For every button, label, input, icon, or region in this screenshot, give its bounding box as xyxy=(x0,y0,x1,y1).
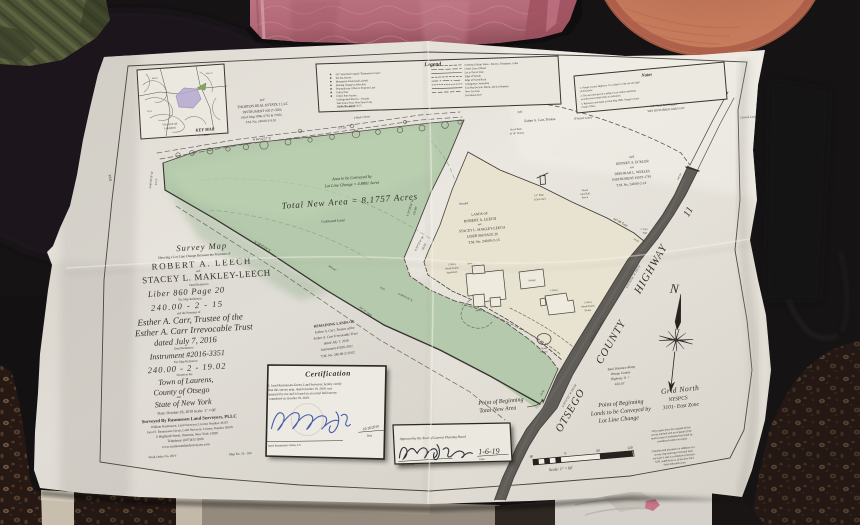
svg-text:Chair Person: Chair Person xyxy=(400,463,415,467)
svg-text:717.18': 717.18' xyxy=(337,126,347,131)
svg-text:N/F: N/F xyxy=(517,110,522,114)
svg-text:Deciduous Tree: Deciduous Tree xyxy=(465,94,482,98)
svg-text:Cty 11: Cty 11 xyxy=(147,111,152,113)
svg-text:60: 60 xyxy=(596,449,600,453)
svg-text:Date: Date xyxy=(367,433,373,437)
svg-text:120: 120 xyxy=(627,446,633,450)
svg-text:60: 60 xyxy=(530,454,534,458)
svg-text:Fence: Fence xyxy=(582,196,589,200)
svg-text:N/F: N/F xyxy=(260,98,265,102)
svg-text:N/F: N/F xyxy=(629,155,635,159)
svg-text:Mill St: Mill St xyxy=(152,78,158,80)
svg-text:Date: Date xyxy=(479,458,485,461)
svg-text:Certification: Certification xyxy=(305,368,351,378)
svg-text:Planter: Planter xyxy=(540,350,547,354)
svg-text:Legend: Legend xyxy=(423,62,441,69)
